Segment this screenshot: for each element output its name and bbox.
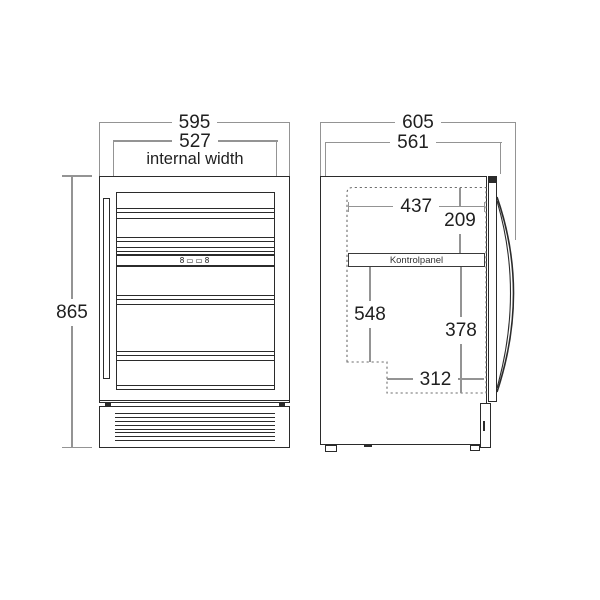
dim-top-to-panel-value: 209 <box>444 207 476 234</box>
dim-height-total-value: 865 <box>56 299 88 326</box>
side-control-panel-box: Kontrolpanel <box>348 253 485 267</box>
dim-width-total: 595 <box>99 113 290 132</box>
dim-line <box>458 378 484 379</box>
dim-recess-depth: 312 <box>387 370 484 389</box>
dim-end-tick <box>62 175 92 176</box>
dim-line <box>369 267 370 301</box>
dim-line <box>218 140 278 141</box>
front-shelf-support <box>117 218 274 219</box>
dim-line <box>348 206 393 207</box>
side-door-top-hinge <box>488 177 497 183</box>
front-door-bottom-edge <box>99 400 290 401</box>
front-control-panel: 8▭▭8 <box>117 254 274 268</box>
door-bottom-detail-tick <box>483 421 485 431</box>
dim-depth-body: 561 <box>325 133 502 152</box>
front-shelf-support <box>117 304 274 305</box>
dim-line <box>387 378 413 379</box>
extension-line <box>289 122 290 176</box>
dim-end-tick <box>484 202 485 212</box>
dim-line <box>325 142 391 143</box>
vent-grille-slat <box>115 436 275 441</box>
side-door-bottom-section <box>480 403 491 449</box>
side-door-handle-arc <box>494 190 520 400</box>
front-shelf-support <box>117 360 274 361</box>
dim-depth-total-value: 605 <box>395 113 441 132</box>
extension-line <box>325 142 326 176</box>
side-rear-foot <box>325 445 337 452</box>
vent-grille-slat <box>115 421 275 426</box>
control-display-glyphs: 8▭▭8 <box>180 256 212 265</box>
front-interior-bottom-line <box>117 385 274 386</box>
vent-grille-slat <box>115 429 275 434</box>
extension-line <box>500 142 501 174</box>
control-panel-label: Kontrolpanel <box>390 255 443 266</box>
extension-line <box>99 122 100 176</box>
dim-recess-depth-value: 312 <box>413 370 459 389</box>
dim-line <box>459 234 460 253</box>
dim-line <box>459 188 460 207</box>
dim-width-internal: 527 <box>113 132 278 151</box>
vent-grille-slat <box>115 413 275 418</box>
dim-depth-body-value: 561 <box>390 133 436 152</box>
dim-end-tick <box>348 202 349 212</box>
dim-depth-total: 605 <box>320 113 516 132</box>
dim-line <box>71 176 72 299</box>
dim-height-total: 865 <box>52 176 93 448</box>
side-front-foot <box>470 445 480 452</box>
dim-width-internal-value: 527 <box>172 132 218 151</box>
dim-line <box>217 122 290 123</box>
dim-line <box>460 267 461 317</box>
technical-drawing-canvas: 595 527 internal width 865 8▭▭8 <box>0 0 600 600</box>
dim-line <box>113 140 173 141</box>
dim-panel-to-bottom-rear-value: 548 <box>354 301 386 328</box>
front-shelf <box>117 295 274 300</box>
internal-width-caption: internal width <box>113 150 278 169</box>
dim-width-total-value: 595 <box>172 113 218 132</box>
dim-line <box>441 122 516 123</box>
dim-top-to-panel: 209 <box>440 188 480 253</box>
extension-line <box>320 122 321 176</box>
dim-end-tick <box>62 447 92 448</box>
dim-line <box>99 122 172 123</box>
dim-line <box>320 122 395 123</box>
front-shelf <box>117 208 274 213</box>
dim-line <box>71 326 72 449</box>
dim-panel-to-bottom-rear: 548 <box>350 267 390 362</box>
front-shelf <box>117 247 274 252</box>
dim-line <box>436 142 502 143</box>
front-shelf <box>117 237 274 242</box>
front-shelf <box>117 351 274 356</box>
dim-internal-depth-top-value: 437 <box>393 197 439 216</box>
dim-panel-to-recess-value: 378 <box>445 317 477 344</box>
front-door-handle <box>103 198 110 379</box>
dim-line <box>369 328 370 362</box>
side-bottom-mark <box>364 445 372 447</box>
